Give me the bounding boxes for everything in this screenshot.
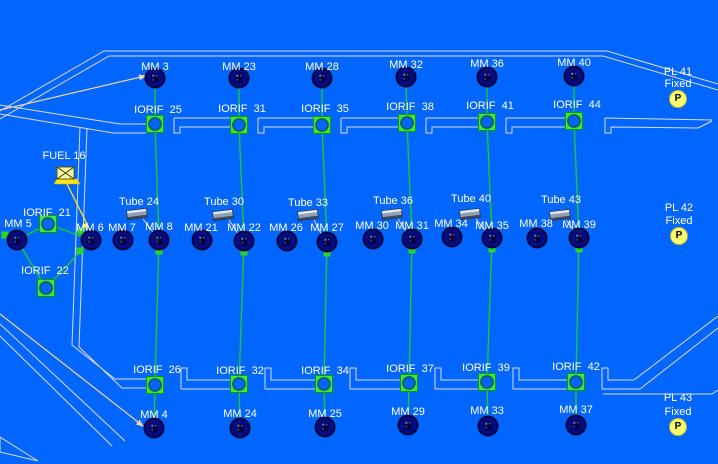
iorif-34-icon[interactable]: [316, 376, 333, 393]
label-tubes-5: Tube 43: [541, 194, 581, 206]
label-mid-mm-6: MM 26: [269, 222, 303, 234]
label-bottom-iorif-5: IORIF 42: [552, 361, 600, 373]
label-bottom-mm-3: MM 29: [391, 406, 425, 418]
iorif-symbols: [38, 113, 585, 394]
label-mid-mm-4: MM 21: [184, 222, 218, 234]
mm-30-node[interactable]: [364, 230, 383, 249]
label-pl-markers-1-symbol: P: [676, 230, 683, 242]
iorif-25-icon[interactable]: [147, 116, 164, 133]
label-bottom-mm-4: MM 33: [470, 405, 504, 417]
label-mid-mm-1: MM 6: [76, 222, 104, 234]
label-bottom-iorif-2: IORIF 34: [301, 365, 349, 377]
tube-30-icon[interactable]: [213, 209, 234, 220]
label-top-mm-4: MM 36: [470, 58, 504, 70]
label-mid-mm-12: MM 38: [519, 218, 553, 230]
mm-8-node[interactable]: [150, 231, 169, 250]
label-left-iorif-1: IORIF 22: [21, 265, 69, 277]
mm-36-node[interactable]: [478, 68, 497, 87]
iorif-31-icon[interactable]: [231, 117, 248, 134]
mm-22-node[interactable]: [235, 232, 254, 251]
iorif-42-icon[interactable]: [568, 374, 585, 391]
iorif-35-icon[interactable]: [314, 117, 331, 134]
mm-34-node[interactable]: [443, 228, 462, 247]
iorif-41-icon[interactable]: [479, 114, 496, 131]
label-top-iorif-2: IORIF 35: [301, 103, 349, 115]
mm-26-node[interactable]: [278, 232, 297, 251]
label-bottom-iorif-3: IORIF 37: [386, 363, 434, 375]
iorif-22-icon[interactable]: [38, 280, 55, 297]
label-mid-mm-11: MM 35: [475, 220, 509, 232]
label-top-mm-0: MM 3: [141, 61, 169, 73]
mm-node-symbols: [8, 67, 589, 438]
label-pl-markers-0-symbol: P: [675, 93, 682, 105]
iorif-37-icon[interactable]: [401, 375, 418, 392]
label-fuel-label: FUEL 16: [42, 150, 85, 162]
label-top-mm-1: MM 23: [222, 61, 256, 73]
label-mid-mm-8: MM 30: [355, 220, 389, 232]
mm-40-node[interactable]: [565, 67, 584, 86]
label-mid-mm-2: MM 7: [108, 222, 136, 234]
label-tubes-4: Tube 40: [451, 193, 491, 205]
label-bottom-iorif-1: IORIF 32: [216, 365, 264, 377]
mm-25-node[interactable]: [316, 418, 335, 437]
grip-handle[interactable]: [77, 248, 84, 255]
iorif-26-icon[interactable]: [147, 377, 164, 394]
label-pl-markers-2-symbol: P: [675, 421, 682, 433]
label-top-mm-3: MM 32: [389, 59, 423, 71]
mm-4-node[interactable]: [145, 419, 164, 438]
label-top-iorif-5: IORIF 44: [553, 99, 601, 111]
label-bottom-mm-0: MM 4: [140, 409, 168, 421]
label-top-iorif-0: IORIF 25: [134, 104, 182, 116]
label-pl-markers-1-name: PL 42: [665, 202, 693, 214]
leader-arrows: [0, 75, 147, 428]
label-top-mm-5: MM 40: [557, 57, 591, 69]
iorif-44-icon[interactable]: [566, 113, 583, 130]
mm-5-node[interactable]: [8, 231, 27, 250]
label-tubes-0: Tube 24: [119, 196, 159, 208]
iorif-32-icon[interactable]: [231, 376, 248, 393]
mm-39-node[interactable]: [570, 229, 589, 248]
iorif-39-icon[interactable]: [479, 374, 496, 391]
label-top-iorif-3: IORIF 38: [386, 101, 434, 113]
label-bottom-mm-2: MM 25: [308, 408, 342, 420]
wing-structure-lines: [0, 51, 718, 461]
label-bottom-mm-5: MM 37: [559, 404, 593, 416]
label-tubes-1: Tube 30: [204, 196, 244, 208]
label-bottom-iorif-4: IORIF 39: [462, 362, 510, 374]
tube-symbols: [127, 208, 571, 220]
schematic-canvas: MM 3MM 23MM 28MM 32MM 36MM 40IORIF 25IOR…: [0, 0, 718, 464]
label-top-iorif-1: IORIF 31: [218, 103, 266, 115]
mm-33-node[interactable]: [479, 417, 498, 436]
label-pl-markers-1-state: Fixed: [666, 215, 693, 227]
label-tubes-2: Tube 33: [288, 197, 328, 209]
mm-27-node[interactable]: [318, 233, 337, 252]
label-top-iorif-4: IORIF 41: [466, 100, 514, 112]
label-mid-mm-7: MM 27: [310, 222, 344, 234]
mm-29-node[interactable]: [399, 416, 418, 435]
mm-31-node[interactable]: [403, 230, 422, 249]
tube-24-icon[interactable]: [127, 208, 148, 219]
label-bottom-mm-1: MM 24: [223, 408, 257, 420]
mm-37-node[interactable]: [567, 416, 586, 435]
label-mid-mm-10: MM 34: [434, 218, 468, 230]
mm-24-node[interactable]: [231, 419, 250, 438]
label-left-iorif-0: IORIF 21: [23, 207, 71, 219]
label-pl-markers-0-name: PL 41: [664, 66, 692, 78]
label-mid-mm-13: MM 39: [562, 219, 596, 231]
label-pl-markers-2-state: Fixed: [665, 406, 692, 418]
mm-38-node[interactable]: [528, 229, 547, 248]
label-pl-markers-0-state: Fixed: [665, 78, 692, 90]
tube-33-icon[interactable]: [298, 209, 319, 220]
label-mid-mm-3: MM 8: [145, 221, 173, 233]
label-mid-mm-9: MM 31: [395, 220, 429, 232]
tube-36-icon[interactable]: [382, 208, 403, 219]
label-mid-mm-5: MM 22: [227, 222, 261, 234]
pl-markers: [670, 91, 688, 436]
fuel-valve-icon[interactable]: [54, 167, 80, 184]
label-pl-markers-2-name: PL 43: [664, 392, 692, 404]
label-bottom-iorif-0: IORIF 26: [133, 364, 181, 376]
label-tubes-3: Tube 36: [373, 195, 413, 207]
label-top-mm-2: MM 28: [305, 61, 339, 73]
label-mid-mm-0: MM 5: [4, 218, 32, 230]
iorif-38-icon[interactable]: [399, 115, 416, 132]
